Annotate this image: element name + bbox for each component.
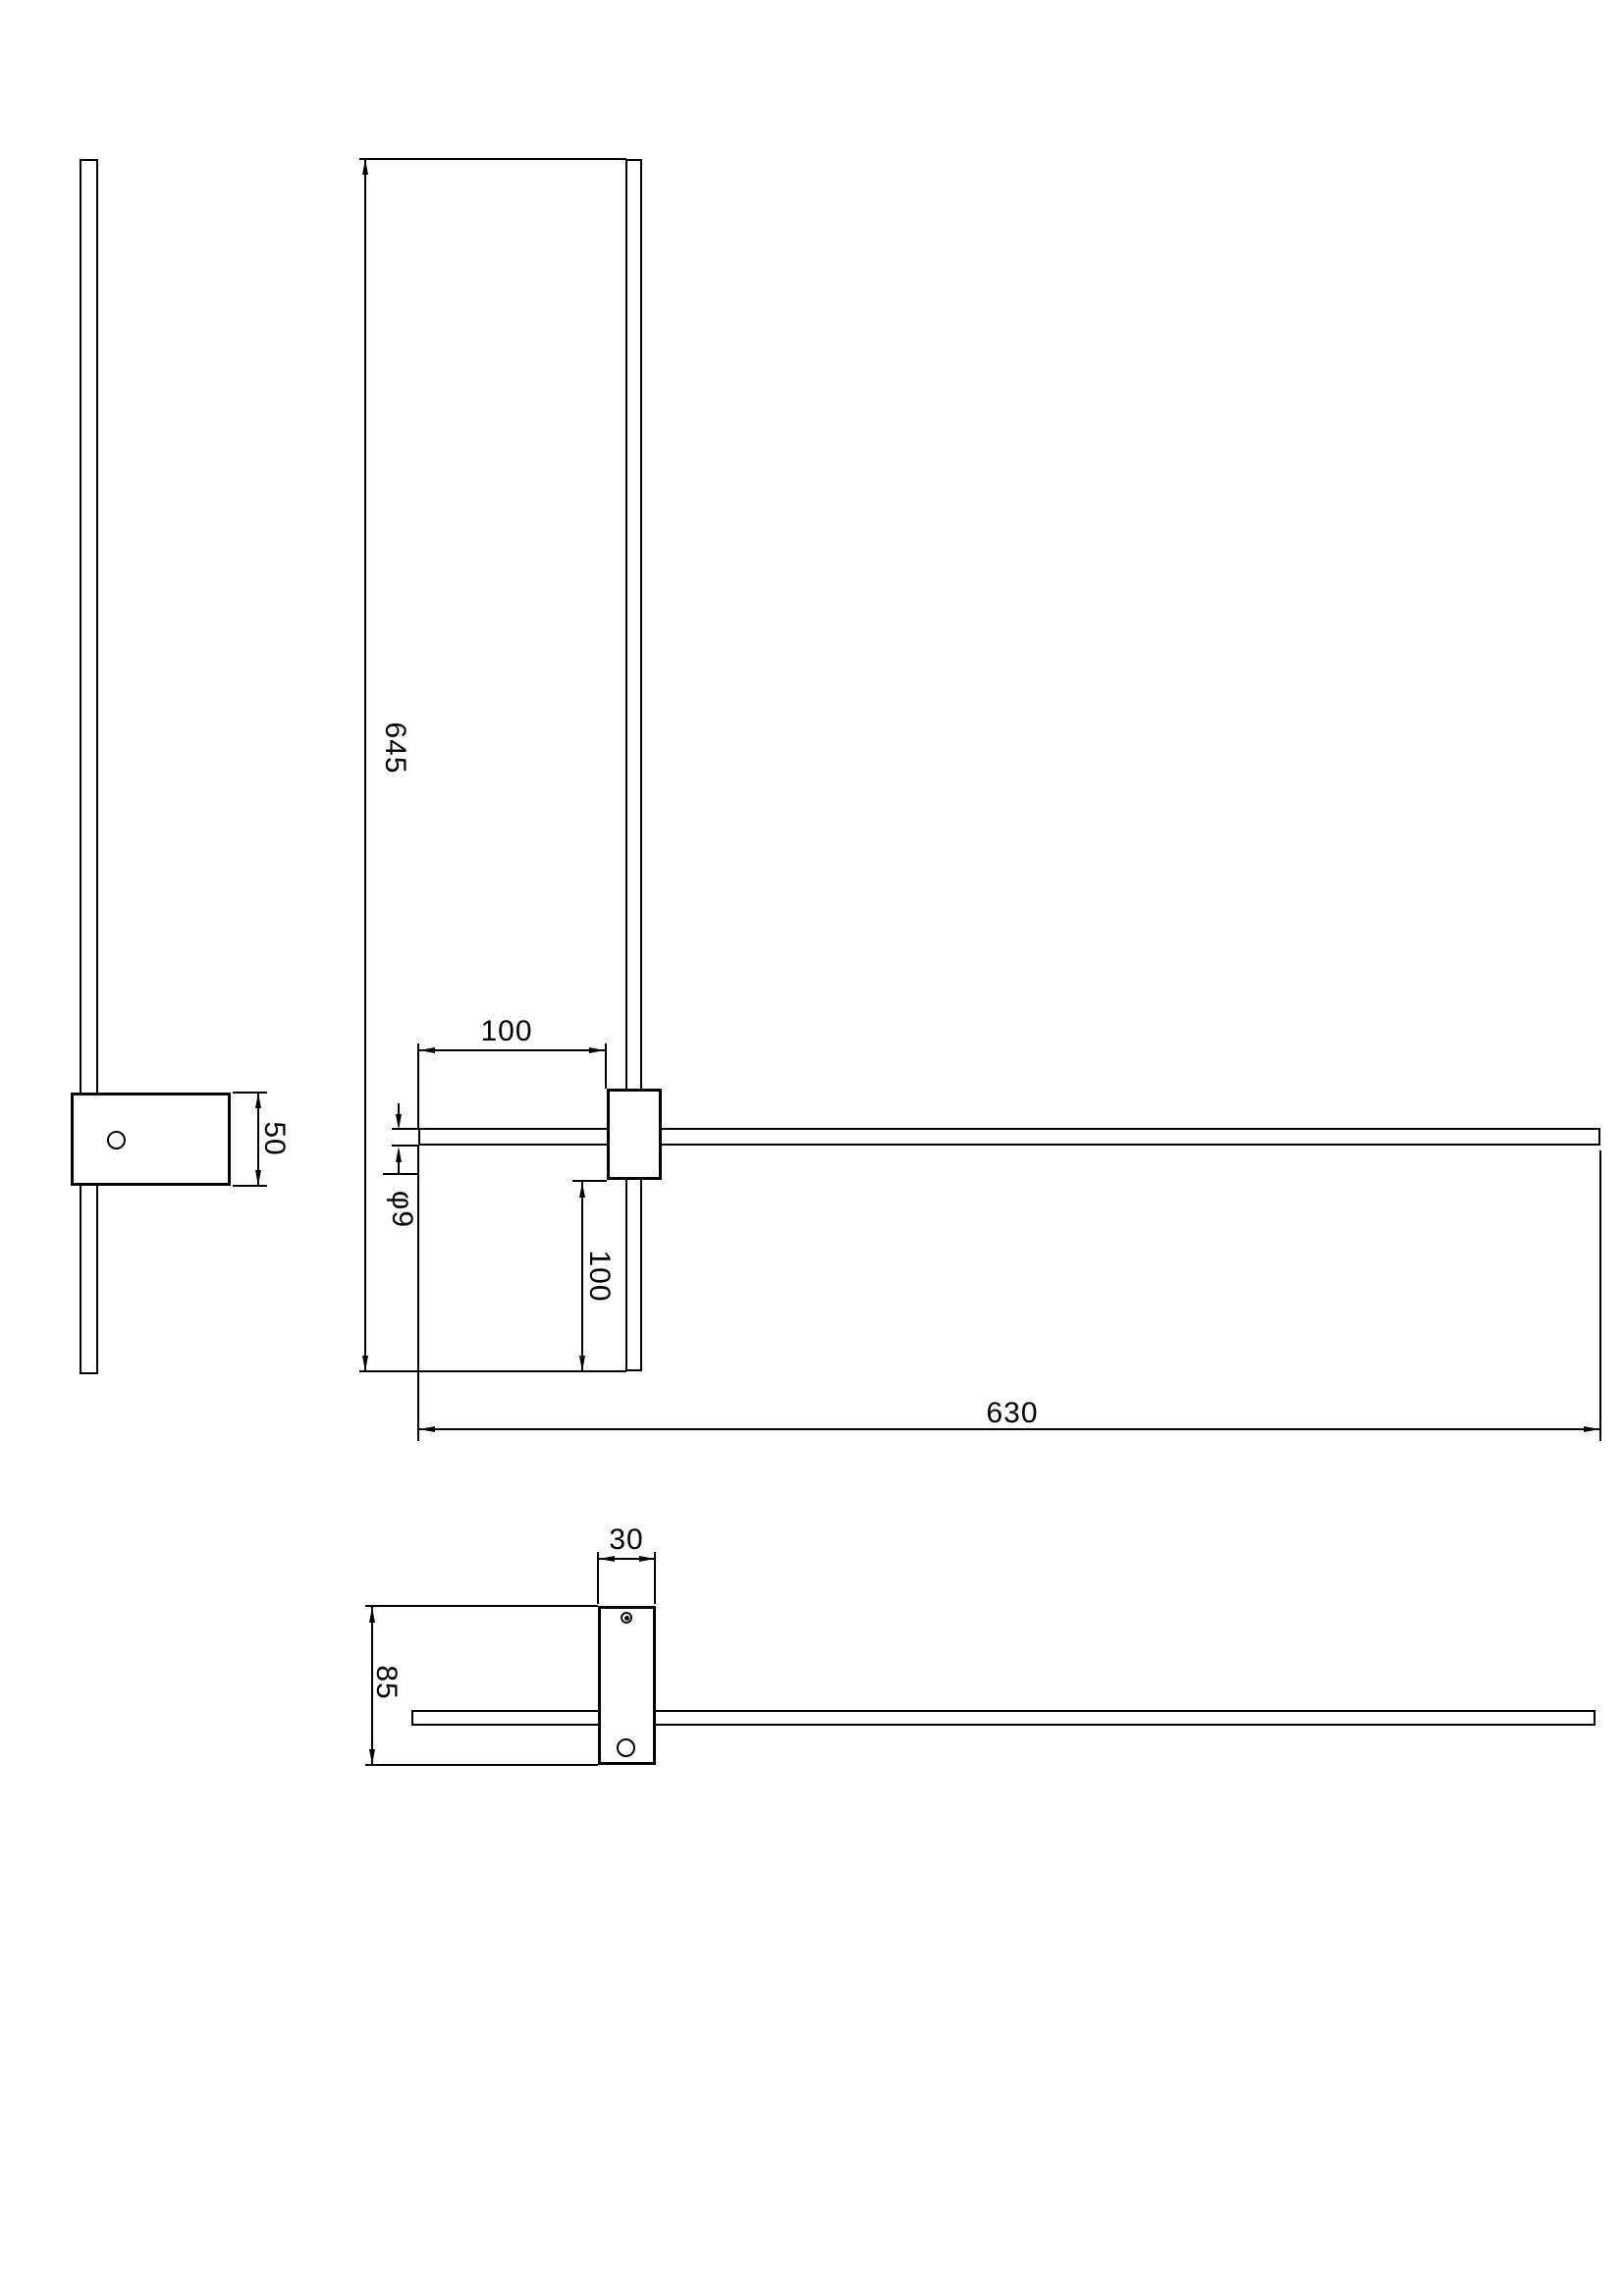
arrowhead-right (1584, 1426, 1599, 1432)
dim-label-phi9: φ9 (385, 1191, 418, 1228)
arrowhead-down (369, 1749, 375, 1765)
dim-label-630: 630 (986, 1397, 1038, 1430)
arrowhead-down (579, 1356, 585, 1371)
front-view-vertical-bar (625, 159, 642, 1371)
leader-line (383, 1173, 419, 1175)
arrowhead-down (396, 1114, 402, 1130)
side-view-vertical-bar (80, 159, 98, 1374)
extension-line (233, 1092, 267, 1094)
arrowhead-left (419, 1426, 435, 1432)
extension-line (233, 1185, 267, 1187)
arrowhead-down (255, 1170, 261, 1186)
front-view-junction-box (607, 1089, 662, 1180)
extension-line (365, 1605, 598, 1607)
dim-label-645: 645 (378, 721, 411, 774)
arrowhead-left (419, 1047, 435, 1053)
arrowhead-up (362, 159, 368, 175)
arrowhead-up (369, 1607, 375, 1623)
arrowhead-up (255, 1093, 261, 1108)
arrowhead-down (362, 1356, 368, 1371)
dimension-line-645 (364, 159, 366, 1371)
dim-label-100-top: 100 (480, 1015, 532, 1048)
bottom-view-screw-center-dot (624, 1616, 629, 1621)
extension-line (572, 1180, 607, 1182)
arrowhead-right (589, 1047, 605, 1053)
extension-line (1599, 1150, 1601, 1441)
dim-label-30: 30 (609, 1523, 643, 1557)
dimension-line-100-top (418, 1049, 606, 1051)
side-view-screw-hole (107, 1131, 126, 1149)
front-view-horizontal-bar (418, 1128, 1600, 1146)
technical-drawing-canvas: 50 645 100 φ9 100 630 (0, 0, 1623, 2296)
arrowhead-up (579, 1182, 585, 1198)
side-view-mounting-bracket (71, 1093, 231, 1186)
dim-label-85: 85 (369, 1665, 403, 1699)
dim-label-100-bottom: 100 (582, 1250, 616, 1302)
extension-line (359, 158, 626, 160)
bottom-view-screw-hole-large (617, 1738, 635, 1757)
dim-label-50: 50 (257, 1121, 291, 1155)
bottom-view-bar (411, 1710, 1596, 1726)
extension-line (359, 1370, 626, 1372)
arrowhead-up (396, 1147, 402, 1162)
extension-line (365, 1764, 598, 1766)
extension-line (417, 1043, 419, 1128)
